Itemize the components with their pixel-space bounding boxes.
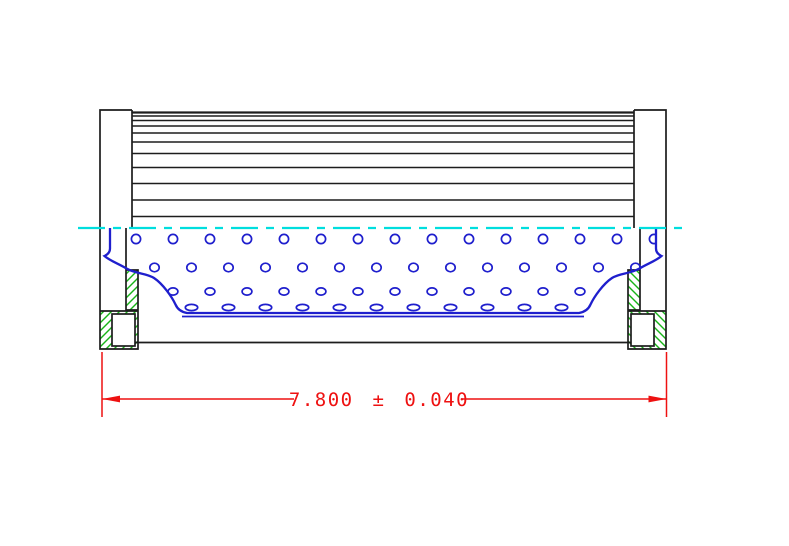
end-cap-left: [66, 110, 178, 349]
perforation-hole: [298, 263, 307, 272]
hatch-line: [138, 270, 178, 310]
perforation-hole: [518, 304, 530, 310]
end-cap-outline: [100, 110, 138, 349]
perforation-hole: [279, 288, 289, 295]
hatch-region: [90, 270, 178, 310]
hatch-line: [98, 270, 138, 310]
hatch-line: [74, 311, 112, 349]
perforation-hole: [131, 234, 140, 243]
perforation-hole: [390, 234, 399, 243]
perforation-hole: [390, 288, 400, 295]
perforation-hole: [464, 288, 474, 295]
perforation-hole: [261, 263, 270, 272]
perforation-hole: [224, 263, 233, 272]
perforation-hole: [427, 288, 437, 295]
perforation-hole: [259, 304, 271, 310]
perforation-hole: [168, 288, 178, 295]
perforation-hole: [353, 234, 362, 243]
perforation-hole: [575, 288, 585, 295]
hatch-line: [122, 270, 162, 310]
hatch-line: [66, 311, 104, 349]
hatch-line: [90, 270, 130, 310]
perforation-hole: [187, 263, 196, 272]
perforation-hole: [483, 263, 492, 272]
perforation-hole: [185, 304, 197, 310]
perforation-hole: [649, 234, 658, 243]
perforation-hole: [407, 304, 419, 310]
perforation-hole: [501, 234, 510, 243]
perforation-hole: [594, 263, 603, 272]
filter-media-lines: [132, 113, 634, 217]
perforation-hole: [538, 288, 548, 295]
technical-drawing: 7.800 ± 0.040: [0, 0, 789, 546]
end-cap-right: [588, 110, 700, 349]
drawing-viewport: 7.800 ± 0.040: [0, 0, 789, 546]
perforation-hole: [168, 234, 177, 243]
perforation-hole: [148, 304, 160, 310]
dimension-arrow-right-icon: [649, 396, 667, 403]
perforation-hole: [296, 304, 308, 310]
perforation-hole: [316, 288, 326, 295]
perforation-hole: [501, 288, 511, 295]
perforation-hole: [242, 234, 251, 243]
perforation-hole: [409, 263, 418, 272]
perforation-hole: [427, 234, 436, 243]
perforation-hole: [481, 304, 493, 310]
perforation-hole: [353, 288, 363, 295]
dimension-arrow-left-icon: [102, 396, 120, 403]
perforation-hole: [150, 263, 159, 272]
perforation-hole: [370, 304, 382, 310]
perforation-hole: [520, 263, 529, 272]
perforation-hole: [205, 288, 215, 295]
perforation-hole: [555, 304, 567, 310]
perforation-hole: [612, 234, 621, 243]
dimension: 7.800 ± 0.040: [102, 352, 667, 417]
perforation-hole: [444, 304, 456, 310]
perforation-hole: [279, 234, 288, 243]
perforation-hole: [205, 234, 214, 243]
perforation-hole: [335, 263, 344, 272]
perforation-hole: [333, 304, 345, 310]
perforation-hole: [557, 263, 566, 272]
perforation-hole: [538, 234, 547, 243]
perforation-hole: [464, 234, 473, 243]
perforation-hole: [372, 263, 381, 272]
perforation-hole: [222, 304, 234, 310]
perforation-hole: [612, 288, 622, 295]
perforation-hole: [649, 288, 659, 295]
perforation-hole: [242, 288, 252, 295]
perforation-hole: [316, 234, 325, 243]
perforation-hole: [446, 263, 455, 272]
dimension-text: 7.800 ± 0.040: [289, 389, 469, 411]
perforation-holes: [131, 234, 659, 310]
perforation-hole: [575, 234, 584, 243]
end-cap-seam-channel: [112, 314, 135, 346]
